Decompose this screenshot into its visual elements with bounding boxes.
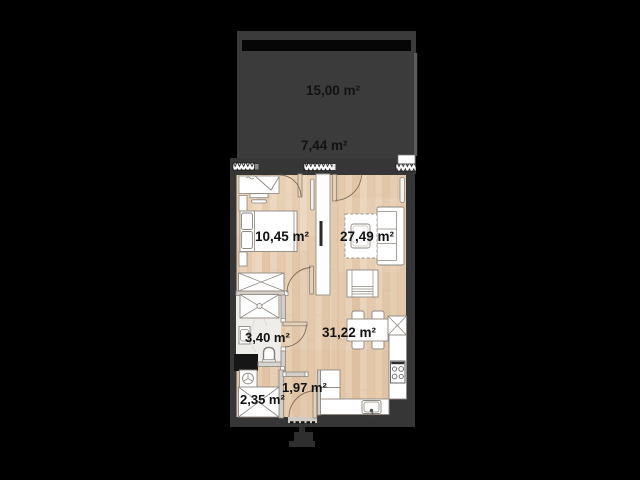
svg-text:15,00 m²: 15,00 m²: [306, 83, 361, 98]
svg-text:27,49 m²: 27,49 m²: [340, 229, 395, 244]
svg-text:31,22 m²: 31,22 m²: [322, 325, 377, 340]
svg-text:1,97 m²: 1,97 m²: [282, 380, 327, 395]
svg-text:7,44 m²: 7,44 m²: [301, 138, 348, 153]
svg-text:10,45 m²: 10,45 m²: [255, 229, 310, 244]
svg-text:2,35 m²: 2,35 m²: [240, 392, 285, 407]
svg-text:3,40 m²: 3,40 m²: [245, 330, 290, 345]
